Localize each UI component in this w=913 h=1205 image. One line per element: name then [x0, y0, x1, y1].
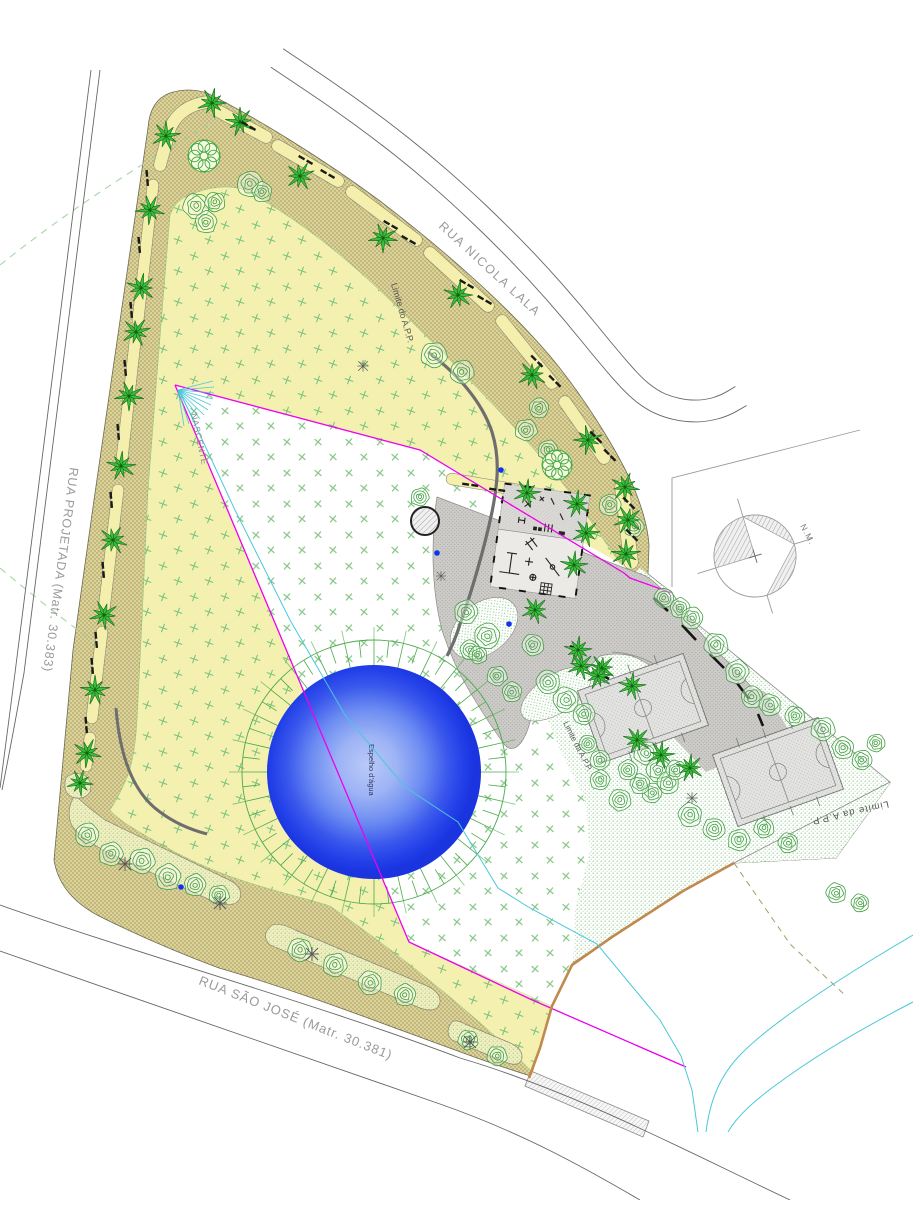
- svg-text:Espelho d’água: Espelho d’água: [367, 744, 376, 797]
